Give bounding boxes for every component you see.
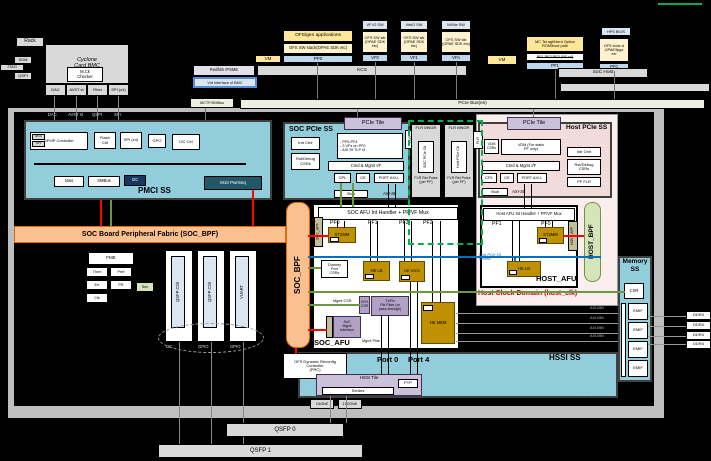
port4-label: Port 4 <box>408 356 429 364</box>
host-pcie-intr-ctrl: Intr Ctrlr <box>567 147 601 157</box>
soc-clock-domain-label: SoC Clock Domain (soc_clk) <box>556 398 651 405</box>
host-pcie-cmd-mgmt: Cmd & Mgmt I/F <box>482 161 560 171</box>
jtag-port: JTAG <box>0 64 24 71</box>
wire <box>417 282 418 374</box>
wire <box>410 282 411 374</box>
wire-blue <box>514 258 516 262</box>
vfn-bar: VFn <box>441 54 471 62</box>
pkt-filter-line: pass-through) <box>379 308 401 312</box>
axi-mm-label: AXI-MM <box>590 327 604 331</box>
wire <box>381 316 382 374</box>
ofs-tools-box: OFS tools & OPAE/fpga etc <box>599 38 629 62</box>
wire <box>533 109 534 117</box>
wire <box>211 243 212 250</box>
wire-axi-mm <box>456 341 618 342</box>
wire <box>555 70 556 99</box>
wire <box>337 221 338 228</box>
wire-ddr <box>648 326 686 327</box>
mgmt-interface-box: SoC Mgmt Interface <box>333 316 361 338</box>
memory-ss-title: SS <box>618 267 652 274</box>
bmc-port-dac: DAC <box>45 84 66 96</box>
pmci-i2c: I2C <box>124 175 146 186</box>
dummy-line: CSRs <box>330 271 340 275</box>
fme-tag: Err <box>86 280 108 290</box>
host-pcie-stub: Stub <box>482 188 508 196</box>
soc-pcie-cpl: CPL <box>334 173 351 183</box>
pkt-filter-box: Tx/Rx Pkt Filter (or pass-through) <box>371 296 409 316</box>
soc-apf: SOC_APF <box>314 217 323 247</box>
host-pcie-pf-flr: PF FLR <box>567 177 601 187</box>
soc-pcie-title: SOC PCIe SS <box>289 126 333 133</box>
wire-blue <box>308 256 601 258</box>
vdm-line: PF only) <box>524 147 538 151</box>
cfg-line: - AXI-St TLP i/f <box>340 148 365 152</box>
ddr4-module: DDR4 <box>686 321 711 330</box>
host-pcie-rst-csrs: Rst/Debug CSRs <box>567 159 601 175</box>
wire-ddr <box>648 316 686 317</box>
soc-pcie-rst-csrs: Rst/Debug CSRs <box>291 153 320 170</box>
wire <box>388 184 389 207</box>
soc-pcie-axis-label: AXI-St <box>383 192 395 196</box>
ofs-tools-line: etc <box>611 52 616 56</box>
mgmt-if-line: Interface <box>340 329 354 333</box>
wire-axi-mm <box>456 323 618 324</box>
legend-flr-line <box>658 3 702 5</box>
host-pcie-vdm-csrs: VDM CSRs <box>484 139 499 154</box>
qsfp0-cage: QSFP 0 <box>226 423 344 437</box>
mem-strip <box>621 303 626 377</box>
wire <box>97 96 98 120</box>
hps-bios-box: HPS BIOS <box>601 27 631 36</box>
fme-box: FME <box>88 252 134 265</box>
host-pcie-ce: CE <box>500 173 514 183</box>
host-pcie-tile: PCIe Tile <box>507 117 561 130</box>
wire-green <box>308 291 625 293</box>
emif-box: EMIF <box>628 341 648 358</box>
hssi-ss-title: HSSI SS <box>549 354 581 362</box>
mgmt-pkts-label: Mgmt Pkts <box>362 340 380 344</box>
pmci-spix4: SPI (x4) <box>120 132 142 149</box>
rst-csr-line: CSRs <box>579 167 589 171</box>
dfh-tag <box>401 275 410 280</box>
fim-block-diagram: Rack SDM JTAG QSPI Cyclone Card BMC M.Ck… <box>0 0 711 461</box>
pmci-wire-label-dac: DAC <box>48 113 57 117</box>
vuart-inner: VUART <box>235 256 249 328</box>
wire-green <box>110 200 112 226</box>
fme-tag: Thrm <box>86 267 108 277</box>
wire <box>357 109 358 117</box>
wire-red <box>100 200 102 226</box>
pmci-i2c-ctrl: I2C Ctrl <box>172 134 200 150</box>
wire <box>388 316 389 374</box>
bmc-checker: M.Ck Checker <box>67 67 103 82</box>
soc-pcie-ce: CE <box>356 173 370 183</box>
boot-pf-strike-box: PF1 PF2 PF3 (PF x4) <box>526 53 584 61</box>
host-pf1-label: PF1 <box>492 222 502 227</box>
soc-bpf-horizontal: SOC Board Peripheral Fabric (SOC_BPF) <box>14 226 286 243</box>
pmci-spi-tag: SPI <box>32 141 45 147</box>
wire <box>614 71 615 99</box>
vfio-sw-box: VF IO SW <box>362 20 388 30</box>
vm-box: VM <box>487 55 517 65</box>
dummy-port-csrs: Dummy Port CSRs <box>321 260 348 278</box>
flash-ctrl-line: Ctrl <box>102 141 108 145</box>
wire-red <box>308 235 329 237</box>
wire <box>317 63 318 99</box>
hssi-tile-title: HSSI Tile <box>360 376 379 381</box>
axi-mm-label: AXI-MM <box>590 307 604 311</box>
wire <box>179 342 180 444</box>
pmci-title: PMCI SS <box>138 187 171 195</box>
vf1-bar: VF1 <box>400 54 428 62</box>
vf-stack-box: OFS SW stk (OPAE SDK etc) <box>400 31 428 53</box>
ddr4-module: DDR4 <box>686 331 711 340</box>
fme-tag: Clk <box>86 293 108 303</box>
ddr4-module: DDR4 <box>686 340 711 349</box>
wire-green <box>308 304 360 306</box>
soc-pcie-intr-ctrl: Intr Ctrlr <box>291 137 320 150</box>
pcie-bus-bar: PCIe Bus(es) <box>240 99 705 109</box>
wire <box>519 221 520 261</box>
qsfp-ctrl-inner: QSFP Ctrlr <box>171 256 185 328</box>
redfish-bar: Redfish /PSME <box>193 65 255 76</box>
wire <box>370 221 371 261</box>
soc-pcie-cfg-list: - PF0-PF4 - 3 VFs on PF0 - AXI-St TLP i/… <box>337 133 403 159</box>
boot-path-box: MC Tst agt/Ident Option ROM/boot path <box>526 36 584 52</box>
host-afu-int-handler: Host AFU Int Handler + PF/VF Mux <box>483 208 575 221</box>
wire-green <box>308 267 321 269</box>
prc-line: (PRC) <box>309 368 320 372</box>
wire <box>545 221 546 227</box>
wire-red <box>308 329 327 331</box>
virtio-sw-box: VirtIO SW <box>400 20 428 30</box>
vm-box: VM <box>255 55 281 63</box>
emif-box: EMIF <box>628 303 648 320</box>
wire-green <box>340 183 342 207</box>
rack-box: Rack <box>16 37 44 47</box>
rate-100g-box: 100GbE <box>338 399 362 409</box>
pmci-pwrseq: M10 PwrSeq <box>204 176 262 190</box>
wire <box>211 342 212 444</box>
boot-path-line: ROM/boot path <box>542 44 568 48</box>
wire <box>330 396 331 423</box>
wire <box>346 396 347 423</box>
mgmt-apf-strip <box>326 316 333 338</box>
bmc-port-avst: AVST st <box>66 84 87 96</box>
pf0-label: PF0 <box>330 221 340 226</box>
qsfp-ctrl-inner: QSFP Ctrlr <box>203 256 217 328</box>
pmci-flash-ctrl: Flash Ctrl <box>94 132 116 149</box>
serdes-box: Serdes <box>322 387 394 395</box>
soc-pcie-tile: PCIe Tile <box>344 117 402 130</box>
wire <box>243 243 244 250</box>
wire <box>512 221 513 261</box>
wire <box>54 96 55 120</box>
soc-bpf-vertical: SOC_BPF <box>286 202 310 348</box>
dfh-tag <box>330 237 339 242</box>
wire <box>404 221 405 261</box>
pmci-smbus: SMBus <box>88 176 120 187</box>
pmci-nios: Nios <box>54 176 84 187</box>
wire-red <box>295 348 297 354</box>
ptp-box: PTP <box>398 379 418 388</box>
host-pcie-vdm: VDM (For static PF only) <box>501 139 561 155</box>
dfh-tag <box>423 305 433 311</box>
pmci-bus-line <box>34 163 246 165</box>
pf0-bar: PF0 <box>283 55 353 63</box>
dfh-csr-box: DFH CSR <box>359 296 370 314</box>
flr-group-outline <box>408 120 483 245</box>
ddr4-module: DDR4 <box>686 311 711 320</box>
ofs-sw-stack-box: OFS SW stack(OPAE SDK etc) <box>283 43 353 54</box>
pmci-m10-tag: M10 <box>32 134 45 140</box>
wire <box>552 221 553 227</box>
emif-box: EMIF <box>628 360 648 377</box>
qsfp1-cage: QSFP 1 <box>158 444 363 458</box>
wire <box>205 108 206 120</box>
wire-red <box>252 190 254 226</box>
wire <box>395 184 396 207</box>
mem-csr: CSR <box>624 283 644 299</box>
vdm-csr-line: CSRs <box>487 147 496 151</box>
wire <box>118 96 119 120</box>
axi-mm-label: AXI-MM <box>590 317 604 321</box>
dfh-csr-line: CSR <box>361 305 368 309</box>
wire <box>344 221 345 228</box>
virt-if-bmc-bar: Virt Interface of BMC <box>193 77 257 88</box>
qspi-port: QSPI <box>14 72 32 80</box>
wire-red <box>563 235 584 237</box>
wire <box>179 243 180 250</box>
vf-stack-box: OFS SW stk (OPAE SDK etc) <box>362 31 388 53</box>
wire <box>414 62 415 99</box>
vf-stack-box: OFS SW stk (OPAE SDK etc) <box>441 31 471 53</box>
host-bpf: HOST_BPF <box>584 202 601 282</box>
host-pcie-axis-label: AXI-St <box>512 190 524 194</box>
pmci-gpo: GPO <box>148 134 166 148</box>
bmc-port-spi: SPI (x4) <box>108 84 129 96</box>
fme-tag: PR <box>110 280 132 290</box>
wire-ddr <box>648 344 686 345</box>
vf0-bar: VF0 <box>362 54 388 62</box>
soc-pcie-port-axi: PORT AXI-L <box>374 173 404 183</box>
fme-tag: Sec <box>136 282 154 292</box>
host-afu-label: HOST_AFU <box>536 275 576 283</box>
soc-host-bar: SoC Host <box>558 68 648 78</box>
wire <box>456 62 457 99</box>
wire-green <box>352 183 354 207</box>
memory-ss-title: Memory <box>618 259 652 266</box>
dfh-tag <box>365 274 374 279</box>
dfh-tag <box>509 270 517 275</box>
wire <box>99 243 100 252</box>
soc-afu-label: SOC_AFU <box>314 339 350 347</box>
rst-csr-line: CSRs <box>300 162 310 166</box>
wire-ddr <box>648 336 686 337</box>
wire <box>76 96 77 120</box>
soc-pcie-cmd-mgmt: Cmd & Mgmt I/F <box>328 161 404 171</box>
host-pcie-title: Host PCIe SS <box>566 125 607 132</box>
ofs-apps-box: OFS/gen applications <box>283 30 353 42</box>
axi-mm-label: AXI-MM <box>590 335 604 339</box>
mctp-smbus-bar: MCTP/SMBus <box>190 98 234 108</box>
wire-axi-mm <box>456 313 618 314</box>
aux-host-bar <box>560 83 710 92</box>
wire <box>377 221 378 261</box>
sdm-port: SDM <box>14 56 32 64</box>
wire <box>531 184 532 208</box>
host-pcie-port-axi: PORT AXI-L <box>517 173 547 183</box>
dfh-tag <box>539 238 547 243</box>
host-pcie-cpl: CPL <box>481 173 497 183</box>
nvme-sw-box: NVMe SW <box>441 20 471 30</box>
emif-box: EMIF <box>628 322 648 339</box>
wire <box>524 184 525 208</box>
bmc-port-fiber: Fiber <box>87 84 108 96</box>
fme-tag: Perf <box>110 267 132 277</box>
wire <box>375 62 376 99</box>
kcs-bar: KCS <box>257 65 467 76</box>
bmc-checker-line: Checker <box>77 75 93 79</box>
